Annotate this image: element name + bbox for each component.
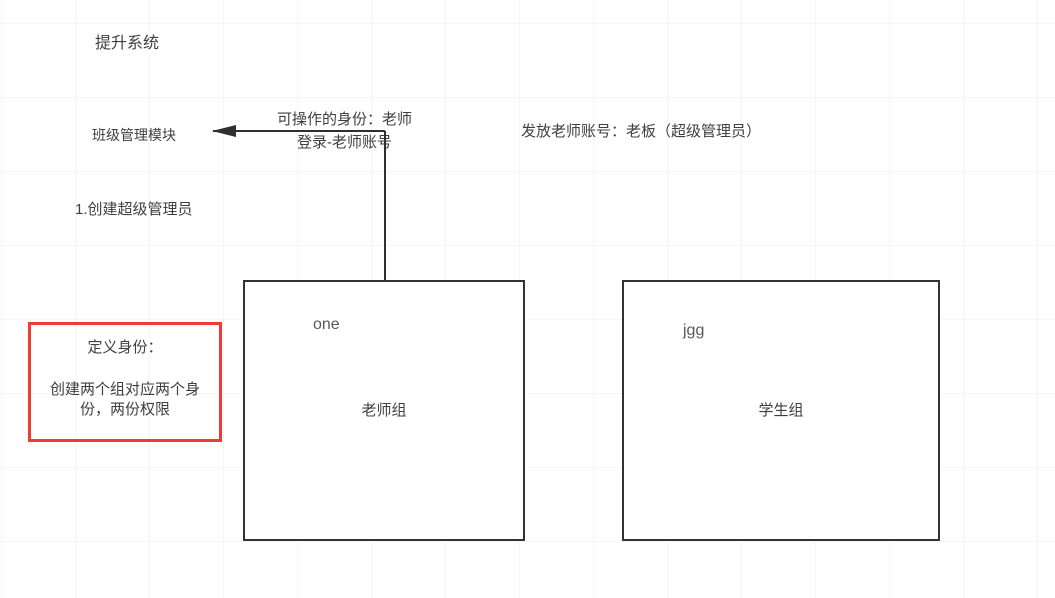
teacher-group-name: 老师组 — [245, 401, 523, 421]
arrow-head-left-icon — [212, 125, 236, 137]
class-management-module-text[interactable]: 班级管理模块 — [92, 125, 176, 145]
diagram-canvas: 提升系统 班级管理模块 可操作的身份：老师 登录-老师账号 发放老师账号：老板（… — [0, 0, 1055, 598]
teacher-group-box[interactable]: one 老师组 — [243, 280, 525, 541]
teacher-group-tag: one — [313, 316, 340, 334]
system-title-text[interactable]: 提升系统 — [95, 34, 159, 54]
identity-note-box[interactable]: 定义身份： 创建两个组对应两个身份，两份权限 — [28, 322, 222, 442]
note-body: 创建两个组对应两个身份，两份权限 — [46, 380, 204, 420]
arrow-label-line1: 可操作的身份：老师 — [262, 108, 427, 131]
arrow-label-line2: 登录-老师账号 — [262, 131, 427, 154]
note-heading: 定义身份： — [31, 338, 219, 358]
issue-teacher-account-text[interactable]: 发放老师账号：老板（超级管理员） — [521, 122, 761, 142]
connector-vertical-line[interactable] — [384, 131, 386, 280]
student-group-tag: jgg — [683, 322, 704, 340]
step1-create-superadmin-text[interactable]: 1.创建超级管理员 — [75, 200, 193, 220]
student-group-box[interactable]: jgg 学生组 — [622, 280, 940, 541]
student-group-name: 学生组 — [624, 401, 938, 421]
connector-horizontal-line[interactable] — [213, 130, 385, 132]
